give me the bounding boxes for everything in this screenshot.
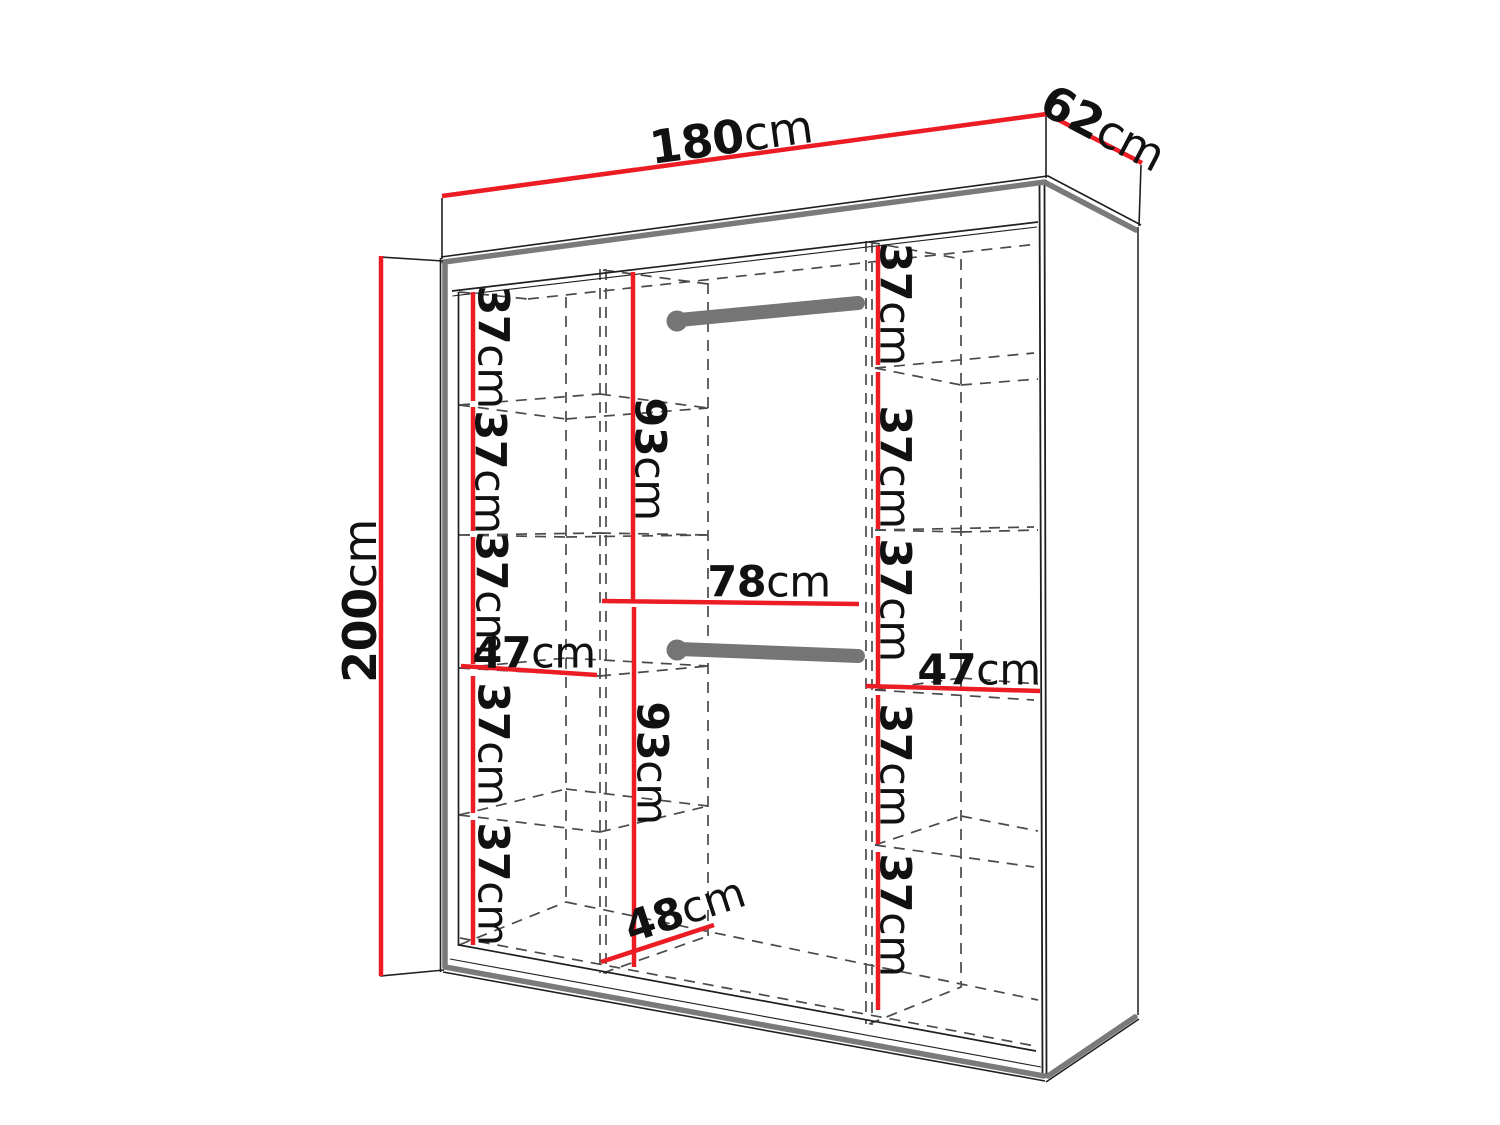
dim-unit: cm bbox=[625, 456, 675, 521]
upper-hanging-rail bbox=[679, 303, 858, 320]
dim-label-overall-height: 200cm bbox=[337, 519, 383, 683]
dim-value: 93 bbox=[627, 701, 677, 760]
dim-value: 37 bbox=[468, 822, 518, 881]
dim-value: 37 bbox=[870, 538, 920, 597]
dim-value: 37 bbox=[870, 405, 920, 464]
dim-label-right-section-width: 47cm bbox=[917, 650, 1040, 693]
dim-value: 37 bbox=[468, 682, 518, 741]
dim-unit: cm bbox=[870, 912, 920, 977]
dim-label-upper-hanging-height: 93cm bbox=[628, 397, 671, 520]
dim-unit: cm bbox=[870, 464, 920, 529]
wardrobe-dimension-diagram: 180cm 62cm 200cm 37cm 37cm 37cm 47cm 37c… bbox=[0, 0, 1500, 1125]
dim-unit: cm bbox=[465, 469, 515, 534]
dim-label-right-shelf-3: 37cm bbox=[873, 538, 916, 661]
dim-label-left-section-width: 47cm bbox=[472, 633, 595, 676]
dim-unit: cm bbox=[976, 646, 1041, 696]
dim-label-lower-hanging-height: 93cm bbox=[630, 701, 673, 824]
dim-unit: cm bbox=[468, 741, 518, 806]
dim-value: 47 bbox=[917, 646, 976, 696]
dim-unit: cm bbox=[740, 99, 816, 162]
front-right-edge bbox=[1040, 184, 1047, 1077]
dim-label-left-shelf-5: 37cm bbox=[471, 822, 514, 945]
dim-value: 93 bbox=[625, 397, 675, 456]
dim-value: 37 bbox=[466, 531, 516, 590]
dim-unit: cm bbox=[766, 558, 831, 608]
dim-unit: cm bbox=[468, 344, 518, 409]
lower-rail-end-knob bbox=[667, 640, 688, 661]
dim-label-hanging-rail-width: 78cm bbox=[707, 562, 830, 605]
dim-label-right-shelf-1: 37cm bbox=[873, 242, 916, 365]
dim-value: 37 bbox=[465, 410, 515, 469]
dim-value: 200 bbox=[333, 588, 387, 683]
dim-unit: cm bbox=[870, 597, 920, 662]
dim-label-left-shelf-4: 37cm bbox=[471, 682, 514, 805]
dim-unit: cm bbox=[870, 301, 920, 366]
dim-label-left-shelf-2: 37cm bbox=[468, 410, 511, 533]
dim-unit: cm bbox=[333, 519, 387, 588]
dim-unit: cm bbox=[627, 760, 677, 825]
dim-value: 37 bbox=[870, 853, 920, 912]
dim-unit: cm bbox=[531, 629, 596, 679]
dim-unit: cm bbox=[468, 881, 518, 946]
dim-unit: cm bbox=[870, 762, 920, 827]
upper-rail-end-knob bbox=[667, 311, 688, 332]
dim-value: 37 bbox=[870, 703, 920, 762]
dim-value: 37 bbox=[468, 285, 518, 344]
dim-label-right-shelf-2: 37cm bbox=[873, 405, 916, 528]
dim-label-right-shelf-4: 37cm bbox=[873, 703, 916, 826]
dim-label-right-shelf-5: 37cm bbox=[873, 853, 916, 976]
dim-value: 37 bbox=[870, 242, 920, 301]
dim-value: 78 bbox=[707, 558, 766, 608]
lower-hanging-rail bbox=[679, 649, 858, 656]
dim-label-left-shelf-1: 37cm bbox=[471, 285, 514, 408]
dim-value: 47 bbox=[472, 629, 531, 679]
